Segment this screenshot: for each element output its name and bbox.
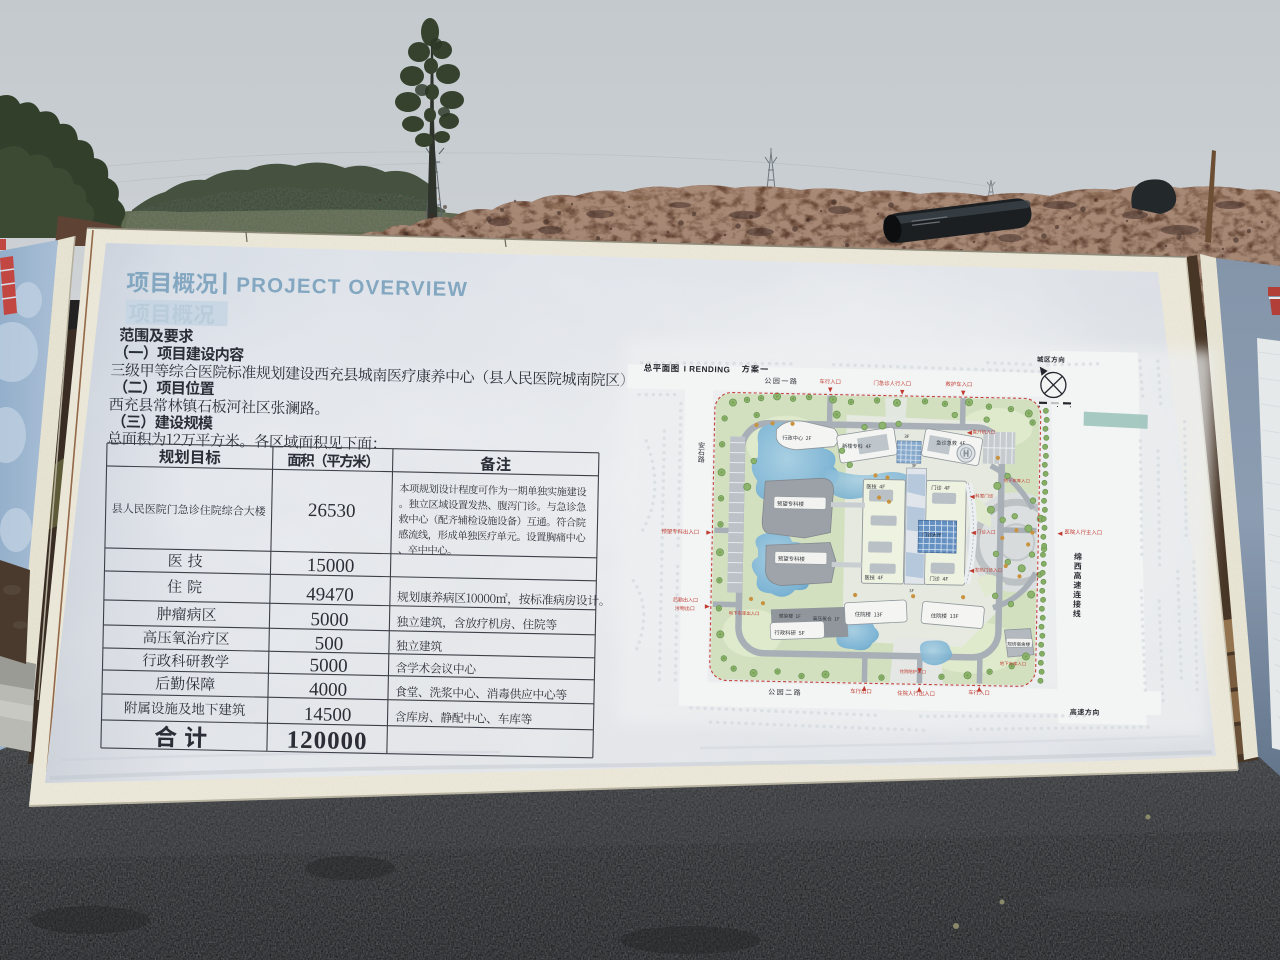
svg-text:5000: 5000 [309, 655, 347, 677]
svg-text:15000: 15000 [307, 555, 355, 577]
svg-text:26530: 26530 [308, 500, 356, 522]
svg-text:4000: 4000 [309, 679, 347, 701]
svg-text:PROJECT OVERVIEW: PROJECT OVERVIEW [236, 274, 468, 302]
svg-text:120000: 120000 [286, 727, 368, 756]
svg-text:500: 500 [315, 633, 344, 655]
svg-text:I RENDING: I RENDING [684, 365, 731, 375]
svg-text:5000: 5000 [310, 609, 348, 631]
svg-text:14500: 14500 [304, 704, 352, 726]
svg-text:49470: 49470 [306, 584, 354, 606]
